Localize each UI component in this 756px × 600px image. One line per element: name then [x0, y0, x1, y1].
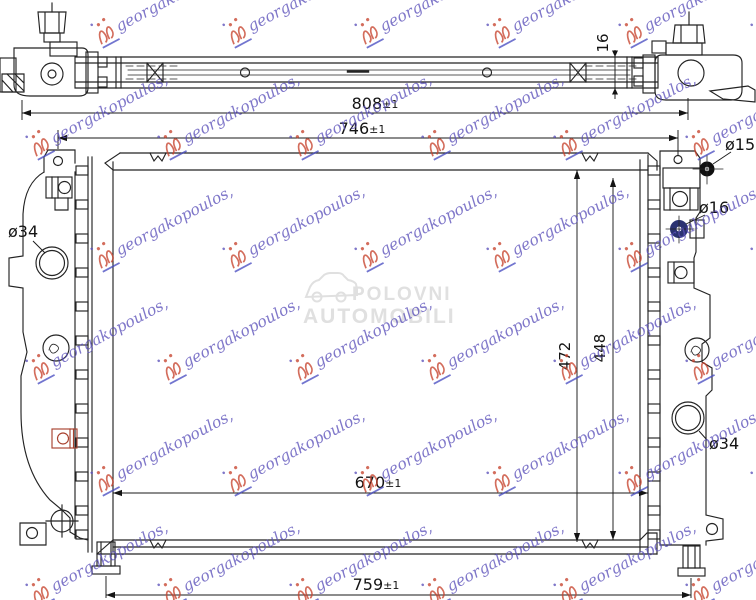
watermark-stamp [354, 177, 501, 272]
watermark-stamp [354, 0, 501, 48]
crimp-tabs-right [648, 166, 660, 539]
watermark-stamp [750, 0, 756, 48]
drain-plug-right [685, 338, 709, 362]
header-notch [150, 153, 166, 161]
mount-pin-right [678, 546, 705, 576]
watermark-stamp [486, 401, 633, 496]
watermark-stamp [90, 177, 237, 272]
bracket-hole [674, 156, 682, 164]
svg-text:472: 472 [556, 342, 574, 371]
watermark-stamp [90, 0, 237, 48]
mid-bracket [668, 262, 694, 283]
watermark-stamp [618, 177, 756, 272]
inlet-port-d34 [36, 247, 68, 279]
mount-bracket-red [52, 429, 77, 448]
mount-hole-left [46, 505, 78, 537]
outlet-port-d34 [672, 402, 704, 434]
watermark-stamp [157, 65, 304, 160]
pipe-port-d15 [693, 155, 723, 184]
watermark-stamp [90, 401, 237, 496]
svg-text:759±1: 759±1 [353, 575, 400, 594]
rivet-hole [483, 68, 492, 77]
header-notch [582, 153, 598, 161]
watermark-stamp [222, 177, 369, 272]
watermark-stamp [25, 289, 172, 384]
watermark-stamp [25, 513, 172, 600]
watermark-stamp [618, 0, 756, 48]
bracket-hole [59, 182, 71, 194]
watermark-stamp [289, 65, 436, 160]
watermark-stamp [222, 401, 369, 496]
watermark-stamp [421, 513, 568, 600]
watermark-stamp [553, 513, 700, 600]
bracket-hole [675, 267, 687, 279]
bracket-hole [673, 192, 688, 207]
foot-hole [27, 528, 38, 539]
watermark-stamp [553, 289, 700, 384]
rivet-hole [241, 68, 250, 77]
dim-inlet-d34: ø34 [8, 222, 45, 253]
svg-text:ø34: ø34 [8, 222, 38, 241]
watermark-stamp [685, 513, 756, 600]
front-view [9, 150, 723, 576]
watermark-stamp [486, 177, 633, 272]
watermark-stamp [685, 289, 756, 384]
watermark-stamp [421, 65, 568, 160]
watermark-stamp [157, 513, 304, 600]
center-watermark-line1: POLOVNI [352, 284, 452, 305]
watermark-stamp [222, 0, 369, 48]
pinch-mark-right [570, 63, 586, 82]
watermark-stamp [157, 289, 304, 384]
svg-text:16: 16 [594, 33, 612, 52]
bracket-hole [54, 157, 63, 166]
radiator-technical-drawing: georgakopoulos, POLOVNI AUTOMOBILI [0, 0, 756, 600]
foot-bracket [20, 523, 46, 545]
foot-hole [707, 524, 718, 535]
